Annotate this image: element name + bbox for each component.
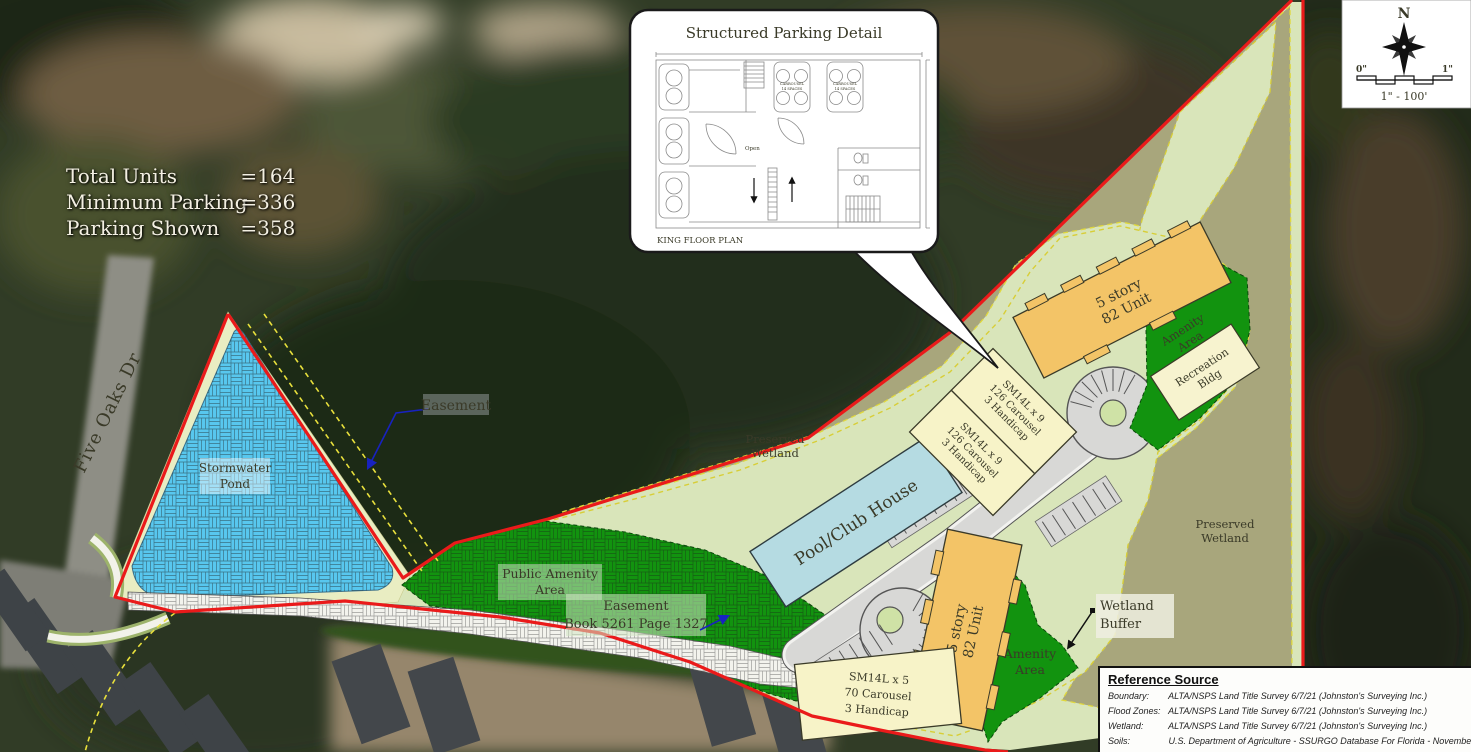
stats-row-min-parking: Minimum Parking =336: [66, 190, 295, 216]
callout-title: Structured Parking Detail: [686, 24, 883, 42]
module-a-label1: CARROUSEL: [780, 82, 805, 86]
stats-label: Total Units: [66, 164, 234, 188]
reference-row-value: U.S. Department of Agriculture - SSURGO …: [1169, 736, 1471, 746]
stats-row-parking-shown: Parking Shown =358: [66, 216, 295, 242]
reference-row-wetland: Wetland: ALTA/NSPS Land Title Survey 6/7…: [1108, 721, 1463, 736]
amenity-south-line2: Area: [1014, 662, 1045, 677]
reference-row-value: ALTA/NSPS Land Title Survey 6/7/21 (John…: [1168, 721, 1427, 731]
stats-value: =336: [240, 190, 295, 214]
pond-label-line1: Stormwater: [199, 461, 272, 475]
callout-box: [630, 10, 938, 252]
compass-scale-box: N 0" 1" 1" - 100': [1342, 0, 1471, 108]
reference-row-boundary: Boundary: ALTA/NSPS Land Title Survey 6/…: [1108, 691, 1463, 706]
north-label: N: [1398, 6, 1411, 22]
pond-label-line2: Pond: [220, 477, 251, 491]
easement-book-line2: Book 5261 Page 1327: [564, 617, 708, 632]
stats-label: Minimum Parking: [66, 190, 234, 214]
public-amenity-line2: Area: [534, 582, 565, 597]
reference-row-value: ALTA/NSPS Land Title Survey 6/7/21 (John…: [1168, 706, 1427, 716]
preserved-wetland-west-line2: Wetland: [751, 446, 799, 460]
floor-plan-caption: KING FLOOR PLAN: [657, 236, 744, 246]
reference-row-label: Flood Zones:: [1108, 706, 1166, 716]
reference-source-title: Reference Source: [1108, 672, 1463, 687]
stats-row-total-units: Total Units =164: [66, 164, 295, 190]
module-a-label2: 14 SPACES: [782, 87, 803, 91]
module-b-label2: 14 SPACES: [835, 87, 856, 91]
preserved-wetland-west-line1: Preserved: [746, 432, 806, 446]
reference-row-label: Soils:: [1108, 736, 1166, 746]
site-plan-canvas: Pool/Club House SM14L x 9 126 Carousel 3…: [0, 0, 1471, 752]
parking-stats: Total Units =164 Minimum Parking =336 Pa…: [66, 164, 295, 242]
reference-row-value: ALTA/NSPS Land Title Survey 6/7/21 (John…: [1168, 691, 1427, 701]
module-b-label1: CARROUSEL: [833, 82, 858, 86]
floor-plan-open-label: Open: [745, 146, 760, 152]
cul-de-sac-south-island: [877, 607, 903, 633]
stats-value: =164: [240, 164, 295, 188]
reference-source-box: Reference Source Boundary: ALTA/NSPS Lan…: [1098, 666, 1471, 752]
stats-value: =358: [240, 216, 295, 240]
preserved-wetland-east-line1: Preserved: [1196, 517, 1256, 531]
wetland-buffer-line1: Wetland: [1100, 599, 1154, 614]
reference-row-soils: Soils: U.S. Department of Agriculture - …: [1108, 736, 1463, 751]
cul-de-sac-north-island: [1100, 400, 1126, 426]
reference-row-label: Wetland:: [1108, 721, 1166, 731]
stats-label: Parking Shown: [66, 216, 234, 240]
scale-start-label: 0": [1356, 65, 1367, 75]
amenity-south-line1: Amenity: [1003, 646, 1057, 661]
scale-end-label: 1": [1442, 65, 1453, 75]
easement-book-line1: Easement: [603, 599, 669, 614]
scale-ratio-label: 1" - 100': [1381, 90, 1428, 103]
reference-row-label: Boundary:: [1108, 691, 1166, 701]
site-plan-page: Pool/Club House SM14L x 9 126 Carousel 3…: [0, 0, 1471, 752]
easement-label: Easement: [421, 398, 492, 414]
parking-structure-sm5: SM14L x 5 70 Carousel 3 Handicap: [794, 648, 961, 740]
preserved-wetland-east-line2: Wetland: [1201, 531, 1249, 545]
reference-row-flood-zones: Flood Zones: ALTA/NSPS Land Title Survey…: [1108, 706, 1463, 721]
public-amenity-line1: Public Amenity: [502, 566, 599, 581]
wetland-buffer-line2: Buffer: [1100, 617, 1142, 632]
wetland-buffer-dot: [1090, 608, 1095, 613]
